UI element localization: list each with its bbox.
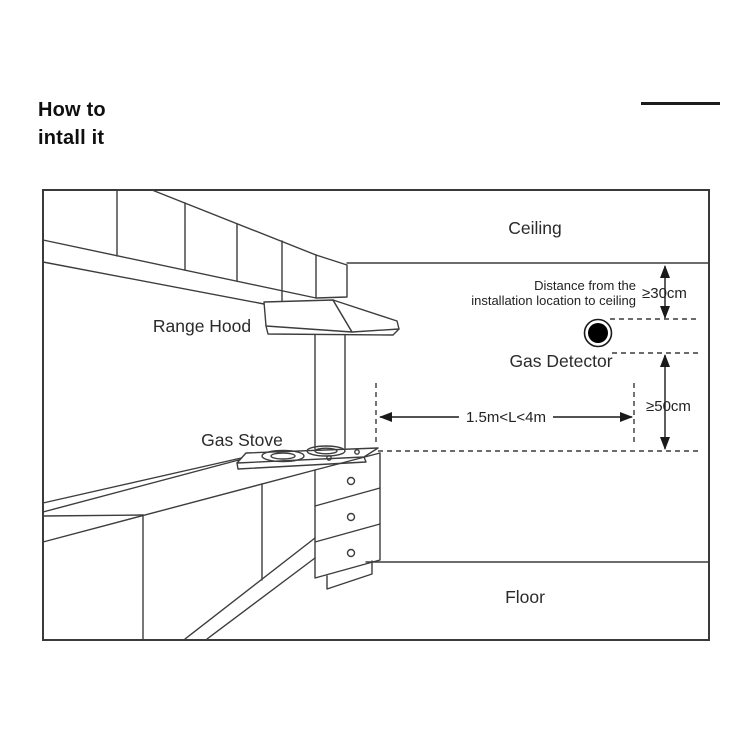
counter <box>43 456 315 639</box>
drawer-knob <box>348 514 355 521</box>
ceiling-clearance-value: ≥30cm <box>642 285 687 302</box>
upper-cabinets <box>43 190 347 304</box>
distance-note-line1: Distance from the <box>534 278 636 293</box>
horizontal-range-value: 1.5m<L<4m <box>466 409 546 426</box>
gas-stove-label: Gas Stove <box>201 430 283 450</box>
hood-column <box>315 335 345 449</box>
page: How tointall it <box>0 0 750 750</box>
range-hood-shape <box>264 300 399 335</box>
floor-label: Floor <box>505 587 545 607</box>
gas-detector-dot <box>585 320 612 347</box>
drawer-unit <box>315 453 380 589</box>
clearance-dashes <box>610 319 700 353</box>
range-hood-label: Range Hood <box>153 316 251 336</box>
ceiling-label: Ceiling <box>508 218 562 238</box>
installation-diagram: Ceiling Range Hood Gas Stove Gas Detecto… <box>0 0 750 750</box>
distance-note-line2: installation location to ceiling <box>471 293 636 308</box>
drawer-knob <box>348 550 355 557</box>
wall-clearance-value: ≥50cm <box>646 398 691 415</box>
drawer-knob <box>348 478 355 485</box>
gas-detector-label: Gas Detector <box>509 351 612 371</box>
